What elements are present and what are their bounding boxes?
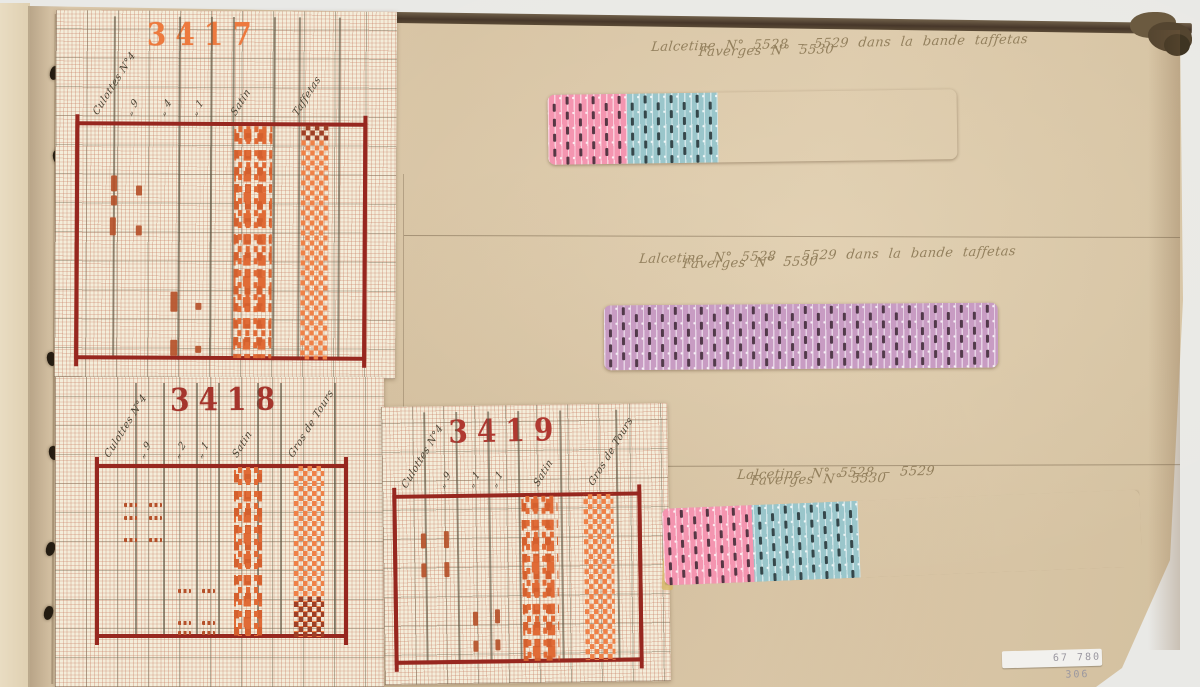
weave-dash xyxy=(720,545,723,553)
pattern-mark xyxy=(202,631,215,635)
weave-dash xyxy=(648,307,651,315)
weave-dash xyxy=(683,102,686,110)
weave-dash xyxy=(674,307,677,315)
weave-dash xyxy=(661,329,664,337)
weave-dash xyxy=(687,359,690,367)
pattern-mark xyxy=(149,503,162,507)
weave-dash xyxy=(824,541,827,549)
pattern-mark xyxy=(149,516,162,520)
weave-dash xyxy=(817,328,820,336)
point-paper-sheet-3418: 3418 Culottes N°4„ 9„ 2„ 1SatinGros de T… xyxy=(55,377,384,687)
weave-dash xyxy=(709,132,712,140)
weave-dash xyxy=(759,537,762,545)
weave-dash xyxy=(732,508,735,516)
weave-dash xyxy=(986,335,989,343)
weave-dash xyxy=(682,555,685,563)
weave-dash xyxy=(733,538,736,546)
weave-dash xyxy=(785,551,788,559)
column-label: „ 4 xyxy=(157,97,175,119)
weave-dash xyxy=(895,342,898,350)
weave-dash xyxy=(791,313,794,321)
weave-dash xyxy=(947,342,950,350)
weave-dash xyxy=(843,328,846,336)
weave-dash xyxy=(635,344,638,352)
weave-dash xyxy=(709,102,712,110)
weave-dash xyxy=(947,357,950,365)
weave-dash xyxy=(791,343,794,351)
weave-dash xyxy=(739,328,742,336)
weave-dash xyxy=(720,530,723,538)
weave-dash xyxy=(765,358,768,366)
weave-dash xyxy=(635,329,638,337)
weave-dash xyxy=(849,525,852,533)
pattern-mark xyxy=(421,563,426,577)
weave-dash xyxy=(696,140,699,148)
weave-dash xyxy=(908,335,911,343)
weave-dash xyxy=(719,515,722,523)
satin-band xyxy=(521,496,559,661)
weave-dash xyxy=(746,544,749,552)
weave-dash xyxy=(758,522,761,530)
weave-dash xyxy=(687,314,690,322)
weave-dash xyxy=(605,103,608,111)
weave-dash xyxy=(869,313,872,321)
weave-dash xyxy=(648,352,651,360)
weave-dash xyxy=(823,526,826,534)
checkerboard-band xyxy=(583,494,615,660)
weave-dash xyxy=(734,568,737,576)
weave-dash xyxy=(934,350,937,358)
fabric-swatch-strip-top xyxy=(548,89,958,165)
weave-dash xyxy=(592,96,595,104)
weave-dash xyxy=(708,569,711,577)
pattern-mark xyxy=(124,516,137,520)
weave-dash xyxy=(765,313,768,321)
weave-dash xyxy=(668,547,671,555)
weave-dash xyxy=(609,329,612,337)
weave-dash xyxy=(657,102,660,110)
weave-dash xyxy=(622,322,625,330)
weave-dash xyxy=(772,528,775,536)
weave-dash xyxy=(631,118,634,126)
weave-dash xyxy=(882,335,885,343)
weave-dash xyxy=(683,132,686,140)
weave-dash xyxy=(670,155,673,163)
weave-dash xyxy=(773,573,776,581)
weave-dash xyxy=(592,141,595,149)
weave-dash xyxy=(696,155,699,163)
weave-dash xyxy=(784,506,787,514)
weave-dash xyxy=(707,554,710,562)
weave-dash xyxy=(921,342,924,350)
weave-dash xyxy=(817,343,820,351)
checkerboard-dark-section xyxy=(294,597,324,637)
weave-dash xyxy=(592,111,595,119)
weave-dash xyxy=(709,117,712,125)
annotation-line: Faverges N° 5530 xyxy=(698,42,835,60)
pattern-mark xyxy=(444,531,449,548)
weave-dash xyxy=(752,351,755,359)
weave-dash xyxy=(618,126,621,134)
column-label: Gros de Tours xyxy=(587,415,636,489)
pattern-mark xyxy=(202,621,215,625)
column-label: „ 2 xyxy=(172,439,190,461)
weave-dash xyxy=(825,571,828,579)
weave-dash xyxy=(850,540,853,548)
pattern-mark xyxy=(421,533,426,548)
weave-dash xyxy=(694,531,697,539)
weave-dash xyxy=(709,147,712,155)
weave-dash xyxy=(869,328,872,336)
weave-dash xyxy=(579,148,582,156)
weave-dash xyxy=(746,529,749,537)
weave-dash xyxy=(851,555,854,563)
weave-dash xyxy=(700,352,703,360)
previous-page-edge xyxy=(0,3,30,687)
satin-band xyxy=(233,126,272,358)
weave-dash xyxy=(758,507,761,515)
page-crease-vertical xyxy=(403,174,404,410)
weave-dash xyxy=(934,335,937,343)
column-label: „ 1 xyxy=(489,469,507,491)
weave-dash xyxy=(592,126,595,134)
weave-dash xyxy=(745,514,748,522)
weave-dash xyxy=(553,104,556,112)
checkerboard-band xyxy=(300,125,328,359)
weave-dash xyxy=(947,312,950,320)
weave-dash xyxy=(856,306,859,314)
weave-dash xyxy=(804,351,807,359)
weave-dash xyxy=(856,336,859,344)
weave-dash xyxy=(713,329,716,337)
weave-dash xyxy=(830,336,833,344)
weave-dash xyxy=(908,350,911,358)
weave-dash xyxy=(579,103,582,111)
weave-dash xyxy=(836,504,839,512)
weave-dash xyxy=(869,358,872,366)
weave-dash xyxy=(566,157,569,165)
column-label: „ 9 xyxy=(437,470,455,492)
weave-dash xyxy=(726,307,729,315)
weave-dash xyxy=(843,313,846,321)
weave-dash xyxy=(674,352,677,360)
weave-dash xyxy=(680,510,683,518)
annotation-line: Faverges N° 5530 xyxy=(682,254,819,272)
weave-dash xyxy=(960,335,963,343)
weave-dash xyxy=(882,350,885,358)
weave-dash xyxy=(674,337,677,345)
weave-dash xyxy=(618,96,621,104)
weave-dash xyxy=(843,358,846,366)
weave-dash xyxy=(810,520,813,528)
weave-dash xyxy=(682,570,685,578)
satin-band xyxy=(234,467,262,636)
weave-dash xyxy=(798,527,801,535)
weave-dash xyxy=(706,509,709,517)
weave-dash xyxy=(830,321,833,329)
pattern-mark xyxy=(473,641,478,652)
weave-dash xyxy=(986,350,989,358)
weave-dash xyxy=(707,539,710,547)
fabric-swatch-strip-middle xyxy=(604,303,998,371)
weave-dash xyxy=(856,321,859,329)
weave-dash xyxy=(683,147,686,155)
column-label: Taffetas xyxy=(291,74,324,119)
weave-dash xyxy=(618,156,621,164)
weave-dash xyxy=(687,344,690,352)
weave-dash xyxy=(609,344,612,352)
column-label: Gros de Tours xyxy=(287,388,337,461)
weave-dash xyxy=(765,343,768,351)
weave-dash xyxy=(648,337,651,345)
pattern-mark xyxy=(110,217,116,235)
weave-dash xyxy=(778,306,781,314)
weave-dash xyxy=(947,327,950,335)
weave-dash xyxy=(670,140,673,148)
weave-dash xyxy=(681,540,684,548)
weave-dash xyxy=(661,344,664,352)
weave-dash xyxy=(706,524,709,532)
weave-dash xyxy=(694,546,697,554)
weave-dash xyxy=(908,305,911,313)
pattern-mark xyxy=(178,631,191,635)
page-edge-shadow xyxy=(1148,30,1180,650)
weave-dash xyxy=(830,306,833,314)
weave-dash xyxy=(760,567,763,575)
weave-dash xyxy=(765,328,768,336)
weave-dash xyxy=(823,511,826,519)
point-paper-sheet-3419: 3419 Culottes N°4„ 9„ 1„ 1SatinGros de T… xyxy=(381,403,671,685)
weave-dash xyxy=(667,517,670,525)
weave-dash xyxy=(618,141,621,149)
weave-dash xyxy=(960,320,963,328)
swatch-section-pink xyxy=(548,94,628,165)
weave-dash xyxy=(811,535,814,543)
weave-dash xyxy=(830,351,833,359)
weave-dash xyxy=(713,359,716,367)
chart-number-3417: 3417 xyxy=(147,16,261,53)
weave-dash xyxy=(837,549,840,557)
weave-dash xyxy=(713,344,716,352)
weave-dash xyxy=(960,305,963,313)
weave-dash xyxy=(771,513,774,521)
pattern-mark xyxy=(178,589,191,593)
weave-dash xyxy=(732,523,735,531)
pattern-mark xyxy=(136,186,142,196)
pattern-mark xyxy=(170,340,177,356)
weave-dash xyxy=(635,314,638,322)
weave-dash xyxy=(687,329,690,337)
weave-dash xyxy=(669,562,672,570)
weave-dash xyxy=(752,321,755,329)
weave-dash xyxy=(657,132,660,140)
chart-number-3418: 3418 xyxy=(170,380,284,418)
weave-dash xyxy=(657,117,660,125)
weave-dash xyxy=(895,357,898,365)
weave-dash xyxy=(669,577,672,585)
weave-dash xyxy=(921,357,924,365)
pattern-mark xyxy=(495,609,500,623)
inventory-number: 67 780 306 xyxy=(1052,649,1103,684)
pattern-mark xyxy=(149,538,162,542)
weave-dash xyxy=(804,306,807,314)
weave-dash xyxy=(799,572,802,580)
weave-dash xyxy=(726,337,729,345)
chart-number-3419: 3419 xyxy=(448,411,563,451)
weave-dash xyxy=(733,553,736,561)
weave-dash xyxy=(759,552,762,560)
weave-dash xyxy=(605,133,608,141)
weave-dash xyxy=(739,343,742,351)
weave-dash xyxy=(657,147,660,155)
weave-dash xyxy=(696,95,699,103)
weave-dash xyxy=(695,561,698,569)
weave-dash xyxy=(661,314,664,322)
weave-dash xyxy=(553,149,556,157)
weave-dash xyxy=(680,525,683,533)
weave-dash xyxy=(661,359,664,367)
weave-dash xyxy=(810,505,813,513)
weave-dash xyxy=(784,521,787,529)
weave-dash xyxy=(618,111,621,119)
weave-dash xyxy=(631,103,634,111)
annotation-line: Faverges N° 5530 xyxy=(750,471,887,489)
column-label: „ 1 xyxy=(189,97,207,119)
weave-dash xyxy=(838,563,841,571)
pattern-mark xyxy=(495,639,500,650)
weave-dash xyxy=(605,118,608,126)
swatch-section-pink xyxy=(662,505,755,586)
pattern-mark xyxy=(444,562,449,577)
weave-dash xyxy=(566,112,569,120)
weave-dash xyxy=(747,559,750,567)
weave-dash xyxy=(791,328,794,336)
point-paper-sheet-3417: 3417 Culottes N°4„ 9„ 4„ 1SatinTaffetas xyxy=(54,10,397,379)
photographed-album-page: 3417 Culottes N°4„ 9„ 4„ 1SatinTaffetas … xyxy=(0,0,1200,687)
weave-dash xyxy=(726,352,729,360)
weave-dash xyxy=(869,343,872,351)
weave-dash xyxy=(882,305,885,313)
pattern-mark xyxy=(195,303,201,310)
weave-dash xyxy=(566,127,569,135)
weave-dash xyxy=(836,519,839,527)
weave-dash xyxy=(670,95,673,103)
weave-dash xyxy=(778,351,781,359)
weave-dash xyxy=(772,543,775,551)
weave-dash xyxy=(713,314,716,322)
weave-dash xyxy=(811,550,814,558)
weave-dash xyxy=(631,148,634,156)
weave-dash xyxy=(670,125,673,133)
weave-dash xyxy=(785,536,788,544)
weave-dash xyxy=(752,306,755,314)
inventory-label: 67 780 306 xyxy=(1002,649,1102,669)
pattern-mark xyxy=(136,226,142,236)
weave-dash xyxy=(668,532,671,540)
weave-dash xyxy=(726,322,729,330)
weave-dash xyxy=(786,566,789,574)
weave-dash xyxy=(579,118,582,126)
weave-dash xyxy=(804,321,807,329)
weave-dash xyxy=(739,313,742,321)
weave-dash xyxy=(609,314,612,322)
weave-dash xyxy=(579,133,582,141)
weave-dash xyxy=(843,343,846,351)
weave-dash xyxy=(856,351,859,359)
weave-dash xyxy=(973,327,976,335)
weave-dash xyxy=(605,148,608,156)
weave-dash xyxy=(644,95,647,103)
weave-dash xyxy=(812,565,815,573)
column-label: „ 9 xyxy=(124,97,142,119)
weave-dash xyxy=(798,542,801,550)
weave-dash xyxy=(799,557,802,565)
weave-dash xyxy=(752,336,755,344)
weave-dash xyxy=(695,576,698,584)
weave-dash xyxy=(644,155,647,163)
weave-dash xyxy=(921,312,924,320)
pattern-mark xyxy=(178,621,191,625)
weave-dash xyxy=(566,97,569,105)
weave-dash xyxy=(700,307,703,315)
column-label: Satin xyxy=(231,429,256,461)
weave-dash xyxy=(934,320,937,328)
pattern-mark xyxy=(124,503,137,507)
weave-dash xyxy=(631,133,634,141)
weave-dash xyxy=(696,125,699,133)
weave-dash xyxy=(683,117,686,125)
pattern-mark xyxy=(202,589,215,593)
weave-dash xyxy=(973,357,976,365)
weave-dash xyxy=(700,322,703,330)
weave-dash xyxy=(747,574,750,582)
weave-dash xyxy=(739,358,742,366)
weave-dash xyxy=(825,556,828,564)
weave-dash xyxy=(644,140,647,148)
weave-dash xyxy=(986,320,989,328)
weave-dash xyxy=(644,125,647,133)
weave-dash xyxy=(721,560,724,568)
weave-dash xyxy=(817,313,820,321)
weave-dash xyxy=(851,570,854,578)
weave-dash xyxy=(773,558,776,566)
weave-dash xyxy=(804,336,807,344)
weave-dash xyxy=(670,110,673,118)
weave-dash xyxy=(644,110,647,118)
weave-dash xyxy=(960,350,963,358)
weave-dash xyxy=(648,322,651,330)
weave-dash xyxy=(817,358,820,366)
weave-dash xyxy=(908,320,911,328)
column-label: Satin xyxy=(532,457,556,489)
weave-dash xyxy=(622,352,625,360)
pattern-mark xyxy=(170,292,177,312)
swatch-section-mauve xyxy=(604,303,998,371)
pattern-mark xyxy=(473,612,478,626)
weave-dash xyxy=(622,307,625,315)
weave-dash xyxy=(986,305,989,313)
weave-dash xyxy=(609,359,612,367)
pattern-mark xyxy=(111,175,117,191)
column-label: „ 9 xyxy=(137,439,155,461)
weave-dash xyxy=(778,336,781,344)
weave-dash xyxy=(693,516,696,524)
column-label: „ 1 xyxy=(466,469,484,491)
weave-dash xyxy=(849,510,852,518)
weave-dash xyxy=(797,512,800,520)
weave-dash xyxy=(622,337,625,345)
pattern-mark xyxy=(111,195,117,205)
